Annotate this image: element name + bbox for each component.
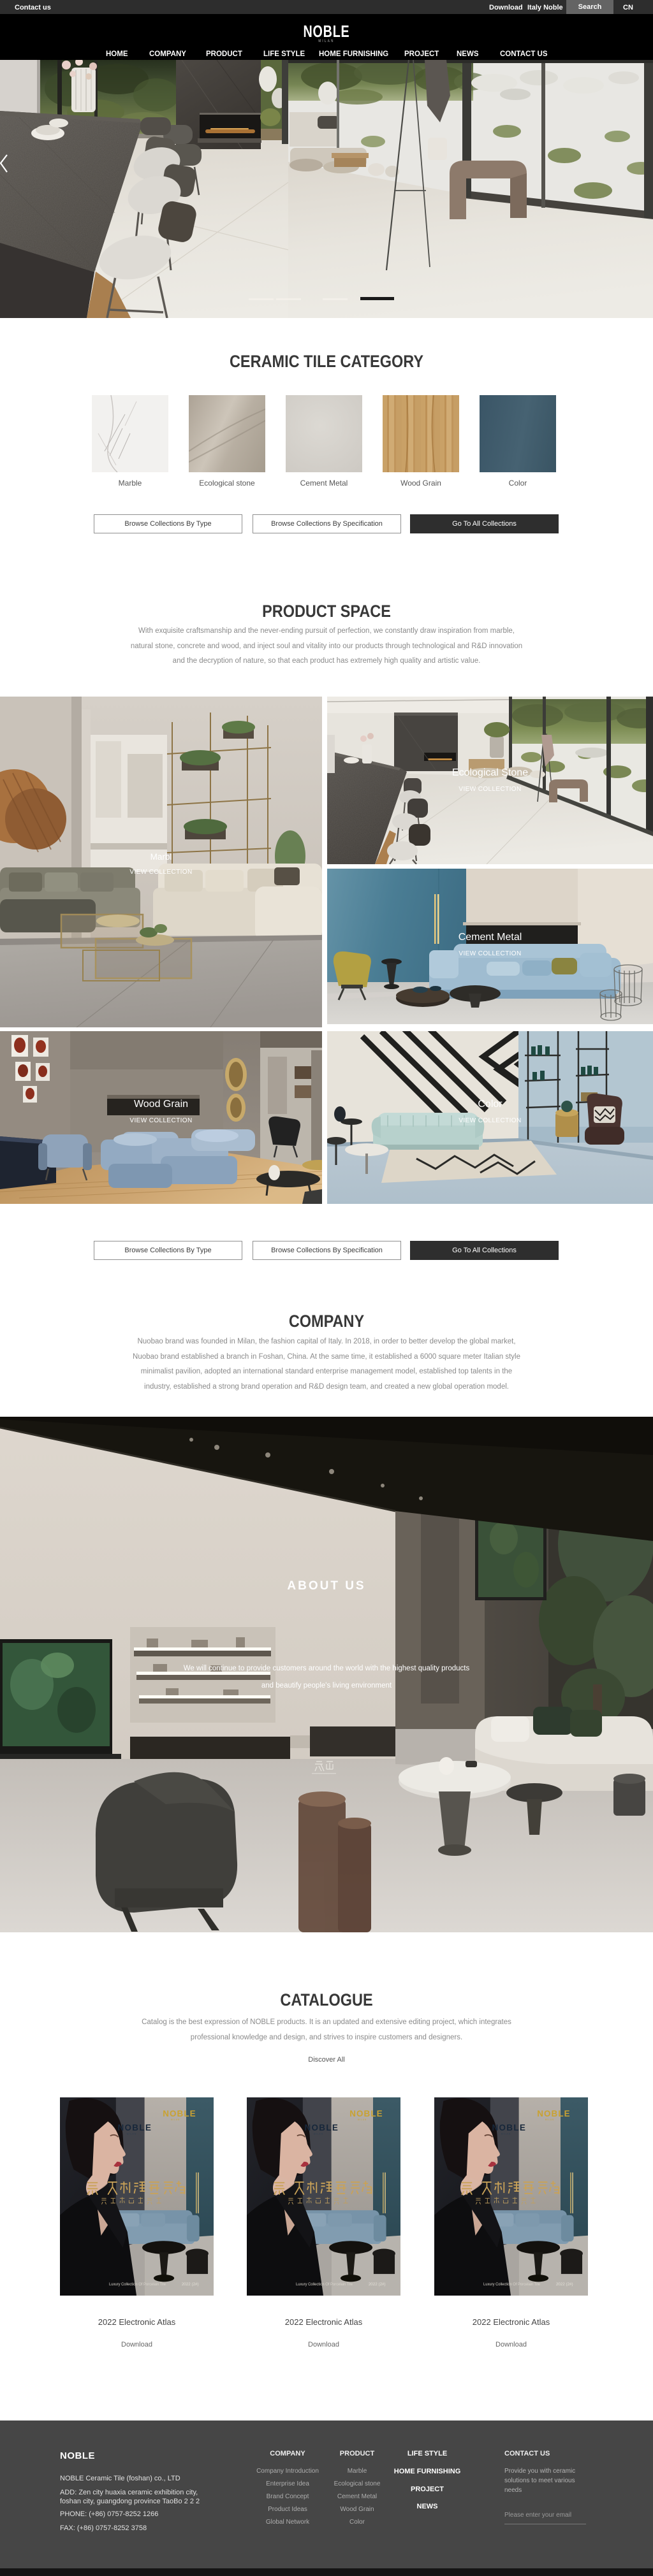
svg-text:Luxury Collection Of Porcelain: Luxury Collection Of Porcelain Tile: [296, 2283, 353, 2287]
svg-text:NOBLE: NOBLE: [492, 2123, 526, 2132]
svg-text:NOBLE: NOBLE: [163, 2109, 196, 2118]
svg-text:NOBLE: NOBLE: [537, 2109, 570, 2118]
svg-text:2022 (2#): 2022 (2#): [182, 2282, 199, 2287]
svg-text:2022 (2#): 2022 (2#): [556, 2282, 573, 2287]
svg-text:NOBLE: NOBLE: [117, 2123, 152, 2132]
svg-text:NOBLE: NOBLE: [349, 2109, 383, 2118]
svg-text:MILAN: MILAN: [501, 2132, 511, 2135]
svg-text:MILAN: MILAN: [171, 2118, 180, 2121]
svg-text:MILAN: MILAN: [358, 2118, 367, 2121]
svg-text:2022 (2#): 2022 (2#): [369, 2282, 386, 2287]
svg-text:Luxury Collection Of Porcelain: Luxury Collection Of Porcelain Tile: [109, 2283, 166, 2287]
svg-text:NOBLE: NOBLE: [304, 2123, 339, 2132]
svg-text:MILAN: MILAN: [314, 2132, 323, 2135]
svg-text:MILAN: MILAN: [127, 2132, 136, 2135]
svg-text:MILAN: MILAN: [545, 2118, 554, 2121]
svg-text:Luxury Collection Of Porcelain: Luxury Collection Of Porcelain Tile: [483, 2283, 541, 2287]
